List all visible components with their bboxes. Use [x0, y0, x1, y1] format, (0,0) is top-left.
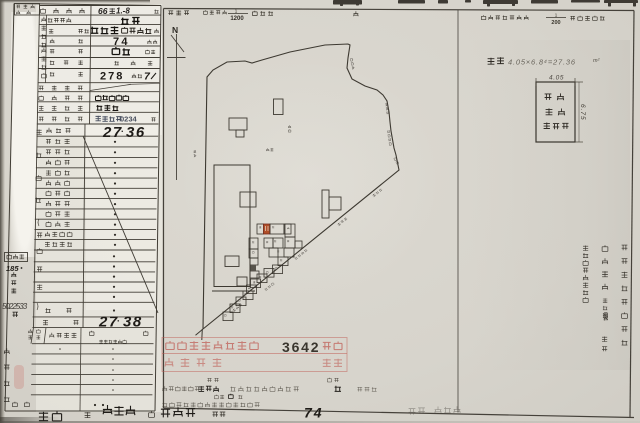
svg-text:200: 200: [551, 20, 560, 26]
svg-text:7: 7: [144, 71, 151, 83]
svg-text:6.75: 6.75: [579, 104, 586, 121]
svg-text:27: 27: [98, 314, 119, 331]
svg-text:1.-8: 1.-8: [116, 7, 130, 16]
svg-text:185: 185: [6, 264, 19, 273]
svg-text:5022533: 5022533: [2, 302, 28, 311]
svg-text:4.05: 4.05: [549, 75, 564, 82]
svg-text:0234: 0234: [602, 312, 608, 322]
svg-text:m²: m²: [593, 58, 600, 64]
svg-text:278: 278: [100, 71, 124, 83]
svg-text:36: 36: [126, 124, 146, 141]
svg-text:0234: 0234: [120, 115, 138, 124]
svg-text:3642: 3642: [282, 339, 320, 355]
svg-text:N: N: [172, 25, 178, 35]
svg-text:27: 27: [102, 124, 123, 141]
svg-text:74: 74: [113, 36, 130, 48]
svg-text:66: 66: [98, 6, 108, 16]
svg-text:1200: 1200: [230, 16, 244, 22]
svg-text:1: 1: [555, 13, 558, 18]
svg-text:·: ·: [121, 127, 124, 137]
svg-text:4.05×6.8⁴=27.36: 4.05×6.8⁴=27.36: [508, 58, 576, 67]
svg-text:74: 74: [304, 405, 324, 421]
svg-text:·: ·: [117, 316, 120, 326]
svg-text:38: 38: [123, 314, 143, 331]
